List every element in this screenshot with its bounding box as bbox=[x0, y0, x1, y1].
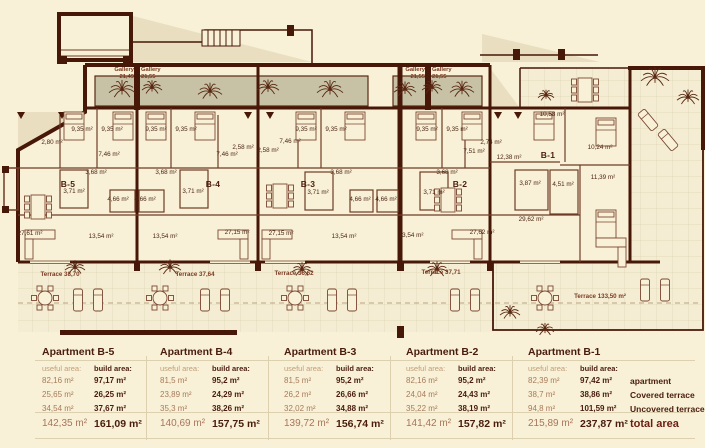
build-area-value: 95,2 m² bbox=[336, 376, 364, 385]
build-area-value: 38,19 m² bbox=[458, 404, 490, 413]
room-area-label: 11,39 m² bbox=[591, 174, 615, 181]
gallery-label: Gallery bbox=[141, 67, 161, 73]
room-area-label: 10,58 m² bbox=[540, 111, 565, 118]
useful-area-value: 35,22 m² bbox=[406, 404, 438, 413]
room-area-label: 4,51 m² bbox=[552, 181, 573, 188]
useful-area-header: useful area: bbox=[160, 364, 199, 373]
useful-area-total: 141,42 m² bbox=[406, 418, 451, 429]
room-area-label: 10,24 m² bbox=[588, 144, 613, 151]
area-row-label: Uncovered terrace bbox=[630, 404, 705, 414]
room-area-label: 4,66 m² bbox=[375, 196, 396, 203]
build-area-value: 97,42 m² bbox=[580, 376, 612, 385]
apartment-title: Apartment B-3 bbox=[284, 346, 356, 358]
room-area-label: 7,46 m² bbox=[98, 151, 119, 158]
useful-area-header: useful area: bbox=[42, 364, 81, 373]
room-area-label: 3,68 m² bbox=[436, 169, 457, 176]
room-area-label: 9,35 m² bbox=[101, 126, 122, 133]
stair-icon bbox=[202, 30, 240, 46]
apartment-title: Apartment B-4 bbox=[160, 346, 232, 358]
room-area-label: 27,61 m² bbox=[18, 230, 43, 237]
room-area-label: 27,62 m² bbox=[470, 229, 495, 236]
room-area-label: 27,15 m² bbox=[225, 229, 250, 236]
room-area-label: 13,54 m² bbox=[332, 233, 357, 240]
terrace-label: Terrace 37,71 bbox=[421, 269, 461, 276]
room-area-label: 3,68 m² bbox=[85, 169, 106, 176]
room-area-label: 3,71 m² bbox=[307, 189, 328, 196]
apartment-label: B-2 bbox=[453, 179, 468, 189]
useful-area-total: 142,35 m² bbox=[42, 418, 87, 429]
room-area-label: 3,71 m² bbox=[182, 188, 203, 195]
room-area-label: 9,35 m² bbox=[295, 126, 316, 133]
build-area-value: 97,17 m² bbox=[94, 376, 126, 385]
build-area-value: 24,29 m² bbox=[212, 390, 244, 399]
useful-area-value: 35,3 m² bbox=[160, 404, 187, 413]
terrace-label: Terrace 38,70 bbox=[40, 271, 80, 278]
apartment-label: B-4 bbox=[206, 179, 221, 189]
terrace-label: Terrace 36,62 bbox=[274, 270, 314, 277]
useful-area-total: 140,69 m² bbox=[160, 418, 205, 429]
useful-area-value: 82,16 m² bbox=[406, 376, 438, 385]
room-area-label: 3,71 m² bbox=[423, 189, 444, 196]
room-area-label: 9,35 m² bbox=[71, 126, 92, 133]
room-area-label: 7,46 m² bbox=[216, 151, 237, 158]
floor-plan-page: Gallery21,49Gallery21,55Gallery21,55Gall… bbox=[0, 0, 705, 448]
useful-area-total: 139,72 m² bbox=[284, 418, 329, 429]
useful-area-value: 26,2 m² bbox=[284, 390, 311, 399]
gallery-label: 21,49 bbox=[119, 74, 134, 80]
useful-area-value: 94,8 m² bbox=[528, 404, 555, 413]
apartment-label: B-1 bbox=[541, 150, 556, 160]
gallery-label: 21,55 bbox=[410, 74, 425, 80]
room-area-label: 4,66 m² bbox=[349, 196, 370, 203]
terrace-label: Terrace 37,64 bbox=[175, 271, 215, 278]
build-area-total: 157,75 m² bbox=[212, 418, 260, 430]
useful-area-total: 215,89 m² bbox=[528, 418, 573, 429]
build-area-header: build area: bbox=[212, 364, 250, 373]
build-area-total: 157,82 m² bbox=[458, 418, 506, 430]
build-area-total: 161,09 m² bbox=[94, 418, 142, 430]
apartment-title: Apartment B-2 bbox=[406, 346, 478, 358]
build-area-value: 26,66 m² bbox=[336, 390, 368, 399]
build-area-value: 26,25 m² bbox=[94, 390, 126, 399]
useful-area-value: 25,65 m² bbox=[42, 390, 74, 399]
apartment-label: B-5 bbox=[61, 179, 76, 189]
build-area-total: 237,87 m² bbox=[580, 418, 628, 430]
useful-area-value: 32,02 m² bbox=[284, 404, 316, 413]
room-area-label: 13,54 m² bbox=[153, 233, 178, 240]
useful-area-value: 82,16 m² bbox=[42, 376, 74, 385]
area-row-label: apartment bbox=[630, 376, 671, 386]
room-area-label: 13,54 m² bbox=[89, 233, 114, 240]
useful-area-header: useful area: bbox=[406, 364, 445, 373]
useful-area-value: 24,04 m² bbox=[406, 390, 438, 399]
room-area-label: 2,74 m² bbox=[480, 139, 501, 146]
room-area-label: 2,80 m² bbox=[41, 139, 62, 146]
room-area-label: 3,68 m² bbox=[330, 169, 351, 176]
useful-area-value: 38,7 m² bbox=[528, 390, 555, 399]
room-area-label: 12,38 m² bbox=[497, 154, 522, 161]
useful-area-value: 81,5 m² bbox=[284, 376, 311, 385]
room-area-label: 3,87 m² bbox=[519, 180, 540, 187]
apartment-title: Apartment B-1 bbox=[528, 346, 600, 358]
build-area-value: 34,88 m² bbox=[336, 404, 368, 413]
room-area-label: 9,35 m² bbox=[325, 126, 346, 133]
useful-area-value: 34,54 m² bbox=[42, 404, 74, 413]
build-area-header: build area: bbox=[458, 364, 496, 373]
terrace-label: Terrace 133,50 m² bbox=[574, 293, 626, 300]
build-area-header: build area: bbox=[336, 364, 374, 373]
build-area-header: build area: bbox=[580, 364, 618, 373]
room-area-label: 9,35 m² bbox=[416, 126, 437, 133]
floor-plan-drawing: Gallery21,49Gallery21,55Gallery21,55Gall… bbox=[0, 0, 705, 340]
room-area-label: 9,35 m² bbox=[446, 126, 467, 133]
room-area-label: 2,58 m² bbox=[257, 147, 278, 154]
build-area-value: 38,26 m² bbox=[212, 404, 244, 413]
room-area-label: 2,58 m² bbox=[232, 144, 253, 151]
room-area-label: 13,54 m² bbox=[399, 232, 424, 239]
area-row-label: Covered terrace bbox=[630, 390, 695, 400]
build-area-header: build area: bbox=[94, 364, 132, 373]
gallery-label: Gallery bbox=[432, 67, 452, 73]
room-area-label: 4,66 m² bbox=[107, 196, 128, 203]
build-area-value: 24,43 m² bbox=[458, 390, 490, 399]
room-area-label: 29,62 m² bbox=[519, 216, 544, 223]
apartment-title: Apartment B-5 bbox=[42, 346, 114, 358]
useful-area-header: useful area: bbox=[528, 364, 567, 373]
room-area-label: 4,66 m² bbox=[134, 196, 155, 203]
useful-area-value: 81,5 m² bbox=[160, 376, 187, 385]
useful-area-value: 23,89 m² bbox=[160, 390, 192, 399]
build-area-total: 156,74 m² bbox=[336, 418, 384, 430]
room-area-label: 3,71 m² bbox=[63, 188, 84, 195]
build-area-value: 95,2 m² bbox=[212, 376, 240, 385]
gallery-label: Gallery bbox=[405, 67, 425, 73]
room-area-label: 7,46 m² bbox=[279, 138, 300, 145]
gallery-label: Gallery bbox=[114, 67, 134, 73]
gallery-label: 21,55 bbox=[432, 74, 447, 80]
useful-area-value: 82,39 m² bbox=[528, 376, 560, 385]
build-area-value: 95,2 m² bbox=[458, 376, 486, 385]
room-area-label: 27,15 m² bbox=[269, 230, 294, 237]
area-tables: Apartment B-5useful area:build area:82,1… bbox=[0, 338, 705, 448]
build-area-value: 38,86 m² bbox=[580, 390, 612, 399]
gallery-label: 21,55 bbox=[141, 74, 156, 80]
room-area-label: 3,68 m² bbox=[155, 169, 176, 176]
room-area-label: 9,35 m² bbox=[145, 126, 166, 133]
build-area-value: 101,59 m² bbox=[580, 404, 616, 413]
room-area-label: 9,35 m² bbox=[175, 126, 196, 133]
useful-area-header: useful area: bbox=[284, 364, 323, 373]
apartment-label: B-3 bbox=[301, 179, 316, 189]
build-area-value: 37,67 m² bbox=[94, 404, 126, 413]
total-area-label: total area bbox=[630, 418, 679, 430]
room-area-label: 7,51 m² bbox=[463, 148, 484, 155]
